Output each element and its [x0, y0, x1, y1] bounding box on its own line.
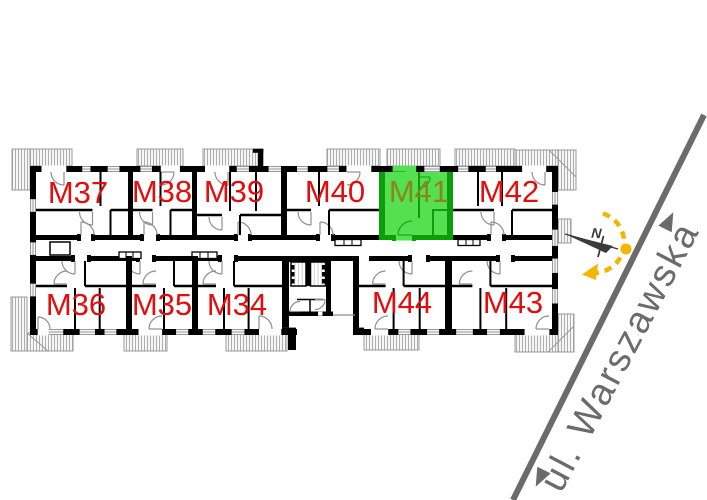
svg-text:M36: M36: [46, 287, 106, 322]
svg-text:M43: M43: [483, 285, 543, 320]
svg-text:M41: M41: [389, 174, 449, 209]
svg-text:M42: M42: [479, 174, 539, 209]
svg-text:M38: M38: [132, 174, 192, 209]
svg-text:M40: M40: [305, 174, 365, 209]
svg-text:M37: M37: [48, 175, 108, 210]
svg-text:M35: M35: [132, 287, 192, 322]
svg-text:M39: M39: [204, 174, 264, 209]
svg-text:M44: M44: [372, 285, 432, 320]
svg-text:M34: M34: [207, 287, 267, 322]
